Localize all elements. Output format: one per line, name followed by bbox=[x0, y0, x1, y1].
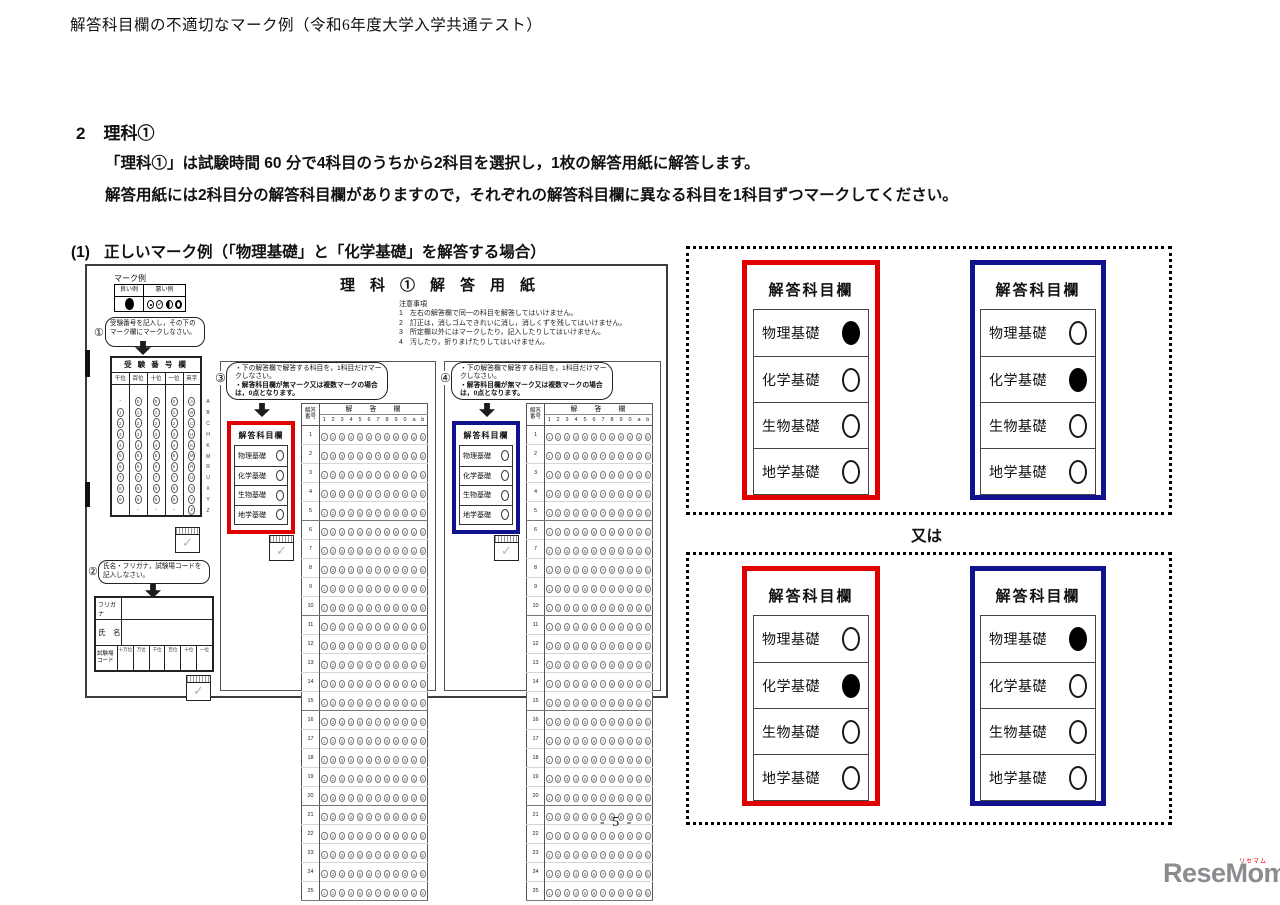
subject-label: 物理基礎 bbox=[238, 451, 266, 461]
answer-bubble-icon: 4 bbox=[573, 851, 580, 860]
answer-bubble-icon: 9 bbox=[618, 452, 625, 461]
answer-bubble-icon: 0 bbox=[627, 870, 634, 879]
answer-bubble-icon: 1 bbox=[321, 433, 328, 442]
answer-bubble-icon: 8 bbox=[609, 433, 616, 442]
answer-bubble-icon: 3 bbox=[564, 832, 571, 841]
answer-bubble-icon: 4 bbox=[573, 870, 580, 879]
number-bubble-icon: 7 bbox=[153, 473, 160, 483]
answer-bubble-icon: 2 bbox=[555, 737, 562, 746]
empty-bubble-icon bbox=[842, 627, 860, 651]
answer-bubble-icon: 7 bbox=[600, 433, 607, 442]
answer-bubble-icon: 1 bbox=[546, 851, 553, 860]
answer-bubble-icon: a bbox=[411, 699, 418, 708]
answer-bubble-icon: 5 bbox=[357, 775, 364, 784]
number-bubble-icon: 9 bbox=[117, 495, 124, 505]
empty-bubble-icon bbox=[1069, 414, 1087, 438]
note-line: 2 訂正は，消しゴムできれいに消し，消しくずを残してはいけません。 bbox=[399, 319, 626, 329]
answer-bubble-icon: 3 bbox=[564, 566, 571, 575]
answer-bubble-icon: a bbox=[636, 604, 643, 613]
answer-bubble-icon: 5 bbox=[582, 452, 589, 461]
subject-label: 地学基礎 bbox=[762, 768, 820, 788]
answer-bubble-icon: 5 bbox=[357, 661, 364, 670]
answer-bubble-icon: 1 bbox=[321, 509, 328, 518]
answer-bubble-icon: 9 bbox=[393, 566, 400, 575]
step4-number: ④ bbox=[440, 371, 451, 385]
subject-label: 物理基礎 bbox=[989, 323, 1047, 343]
answer-bubble-icon: 1 bbox=[546, 642, 553, 651]
check-icon: ✓ bbox=[187, 683, 210, 699]
answer-bubble-icon: 6 bbox=[366, 737, 373, 746]
answer-bubble-icon: 7 bbox=[375, 889, 382, 898]
answer-bubble-icon: 0 bbox=[627, 718, 634, 727]
number-bubble-icon: Y bbox=[188, 495, 195, 505]
answer-bubble-icon: a bbox=[636, 794, 643, 803]
number-bubble-icon: 1 bbox=[171, 408, 178, 418]
answer-bubble-icon: b bbox=[645, 889, 652, 898]
answer-bubble-icon: 5 bbox=[357, 509, 364, 518]
answer-bubble-icon: 9 bbox=[393, 889, 400, 898]
answer-bubble-icon: 4 bbox=[573, 661, 580, 670]
answer-bubble-icon: b bbox=[645, 566, 652, 575]
answer-bubble-icon: 4 bbox=[348, 813, 355, 822]
answer-bubble-icon: b bbox=[645, 585, 652, 594]
answer-bubble-icon: a bbox=[411, 794, 418, 803]
answer-bubble-icon: 2 bbox=[330, 642, 337, 651]
exam-site-code-label: 試験場 コード bbox=[96, 646, 118, 670]
subject-row: 地学基礎 bbox=[981, 754, 1095, 800]
correct-example-pattern-2: 解答科目欄 物理基礎化学基礎生物基礎地学基礎 解答科目欄 物理基礎化学基礎生物基… bbox=[686, 552, 1172, 825]
answer-bubble-icon: 0 bbox=[627, 547, 634, 556]
subject-row: 生物基礎 bbox=[235, 485, 287, 505]
answer-bubble-icon: 0 bbox=[402, 794, 409, 803]
empty-bubble-icon bbox=[1069, 321, 1087, 345]
answer-bubble-icon: 8 bbox=[384, 585, 391, 594]
answer-bubble-icon: 8 bbox=[384, 452, 391, 461]
answer-bubble-icon: 4 bbox=[348, 604, 355, 613]
answer-bubble-icon: 0 bbox=[402, 851, 409, 860]
subject-label: 生物基礎 bbox=[762, 722, 820, 742]
timing-mark-icon bbox=[85, 482, 90, 507]
answer-bubble-icon: 8 bbox=[609, 889, 616, 898]
answer-bubble-icon: 2 bbox=[330, 433, 337, 442]
answer-bubble-icon: 3 bbox=[339, 528, 346, 537]
answer-bubble-icon: 6 bbox=[591, 585, 598, 594]
answer-bubble-icon: a bbox=[636, 889, 643, 898]
answer-bubble-icon: b bbox=[420, 642, 427, 651]
answer-bubble-icon: b bbox=[645, 547, 652, 556]
letter-index: X bbox=[206, 484, 210, 495]
letter-index-column: ABCHKMRUXYZ bbox=[206, 397, 210, 517]
answer-bubble-icon: 0 bbox=[402, 737, 409, 746]
answer-bubble-icon: b bbox=[645, 870, 652, 879]
answer-bubble-icon: 7 bbox=[375, 566, 382, 575]
answer-bubble-icon: b bbox=[420, 623, 427, 632]
answer-bubble-icon: 3 bbox=[339, 870, 346, 879]
answer-bubble-icon: 1 bbox=[321, 870, 328, 879]
answer-bubble-icon: 7 bbox=[600, 661, 607, 670]
answer-bubble-icon: 1 bbox=[546, 813, 553, 822]
answer-bubble-icon: 0 bbox=[627, 889, 634, 898]
answer-bubble-icon: a bbox=[636, 452, 643, 461]
answer-bubble-icon: 3 bbox=[564, 718, 571, 727]
answer-bubble-icon: a bbox=[411, 452, 418, 461]
answer-bubble-icon: 1 bbox=[321, 490, 328, 499]
number-bubble-icon: 7 bbox=[135, 473, 142, 483]
answer-bubble-icon: 4 bbox=[573, 680, 580, 689]
answer-bubble-icon: b bbox=[645, 623, 652, 632]
answer-bubble-icon: 7 bbox=[375, 680, 382, 689]
answer-bubble-icon: 4 bbox=[348, 737, 355, 746]
answer-bubble-icon: 1 bbox=[546, 509, 553, 518]
subject-label: 地学基礎 bbox=[762, 462, 820, 482]
answer-bubble-icon: 3 bbox=[339, 490, 346, 499]
answer-bubble-icon: 3 bbox=[564, 889, 571, 898]
step1-instruction: 受験番号を記入し，その下のマーク欄にマークしなさい。 bbox=[105, 317, 205, 347]
answer-bubble-icon: 0 bbox=[402, 870, 409, 879]
answer-bubble-icon: 4 bbox=[573, 699, 580, 708]
subject-label: 物理基礎 bbox=[762, 323, 820, 343]
answer-bubble-icon: 4 bbox=[348, 642, 355, 651]
answer-bubble-icon: 2 bbox=[555, 718, 562, 727]
answer-bubble-icon: 8 bbox=[609, 832, 616, 841]
answer-bubble-icon: 1 bbox=[546, 528, 553, 537]
answer-bubble-icon: a bbox=[636, 490, 643, 499]
answer-bubble-icon: 4 bbox=[348, 889, 355, 898]
step4-line1: ・下の解答欄で解答する科目を，1科目だけマークしなさい。 bbox=[460, 365, 608, 382]
answer-bubble-icon: 4 bbox=[348, 718, 355, 727]
answer-bubble-icon: a bbox=[411, 585, 418, 594]
empty-bubble-icon bbox=[276, 470, 284, 481]
answer-bubble-icon: 4 bbox=[573, 509, 580, 518]
check-box: ✓ bbox=[269, 535, 294, 561]
answer-bubble-icon: b bbox=[645, 756, 652, 765]
subject-table: 物理基礎化学基礎生物基礎地学基礎 bbox=[753, 309, 869, 495]
paragraph-2: 解答用紙には2科目分の解答科目欄がありますので，それぞれの解答科目欄に異なる科目… bbox=[105, 183, 958, 205]
answer-bubble-icon: 6 bbox=[366, 813, 373, 822]
answer-bubble-icon: 1 bbox=[321, 699, 328, 708]
answer-bubble-icon: a bbox=[411, 756, 418, 765]
subject-box-title: 解答科目欄 bbox=[975, 279, 1101, 300]
answer-bubble-icon: 5 bbox=[582, 794, 589, 803]
answer-bubble-icon: b bbox=[420, 490, 427, 499]
answer-bubble-icon: 9 bbox=[618, 851, 625, 860]
answer-bubble-icon: 9 bbox=[393, 756, 400, 765]
answer-bubble-icon: 4 bbox=[573, 775, 580, 784]
answer-bubble-icon: a bbox=[636, 566, 643, 575]
answer-bubble-icon: b bbox=[645, 490, 652, 499]
answer-bubble-icon: 2 bbox=[330, 699, 337, 708]
answer-bubble-icon: 1 bbox=[546, 471, 553, 480]
answer-bubble-icon: 8 bbox=[609, 794, 616, 803]
answer-bubble-icon: 1 bbox=[546, 718, 553, 727]
subject-label: 生物基礎 bbox=[463, 490, 491, 500]
correct-example-pattern-1: 解答科目欄 物理基礎化学基礎生物基礎地学基礎 解答科目欄 物理基礎化学基礎生物基… bbox=[686, 246, 1172, 515]
answer-bubble-icon: 8 bbox=[609, 699, 616, 708]
subject-row: 化学基礎 bbox=[981, 356, 1095, 402]
resemom-logo: ReseMom. リセマム bbox=[1163, 858, 1271, 889]
answer-bubble-icon: 3 bbox=[564, 642, 571, 651]
empty-bubble-icon bbox=[842, 368, 860, 392]
sheet-title: 理 科 ① 解 答 用 紙 bbox=[340, 274, 535, 295]
number-bubble-icon: 2 bbox=[117, 418, 124, 428]
answer-bubble-icon: 4 bbox=[573, 737, 580, 746]
subject-row: 物理基礎 bbox=[235, 446, 287, 466]
step1-number: ① bbox=[94, 326, 104, 339]
empty-bubble-icon bbox=[501, 450, 509, 461]
answer-grid-table: 解答番号解 答 欄1234567890ab11234567890ab212345… bbox=[301, 403, 428, 901]
check-icon: ✓ bbox=[176, 535, 199, 551]
code-column: 千位 bbox=[149, 646, 165, 670]
number-bubble-icon: H bbox=[188, 429, 195, 439]
answer-bubble-icon: 3 bbox=[564, 452, 571, 461]
answer-bubble-icon: 9 bbox=[618, 566, 625, 575]
subject-label: 化学基礎 bbox=[762, 676, 820, 696]
answer-bubble-icon: a bbox=[636, 775, 643, 784]
answer-bubble-icon: 5 bbox=[582, 737, 589, 746]
answer-bubble-icon: 4 bbox=[348, 699, 355, 708]
answer-bubble-icon: 9 bbox=[618, 870, 625, 879]
answer-bubble-icon: 6 bbox=[366, 794, 373, 803]
answer-bubble-icon: 4 bbox=[348, 870, 355, 879]
answer-bubble-icon: 1 bbox=[546, 661, 553, 670]
number-bubble-icon: 4 bbox=[117, 440, 124, 450]
answer-bubble-icon: 2 bbox=[330, 756, 337, 765]
answer-bubble-icon: 6 bbox=[366, 547, 373, 556]
answer-bubble-icon: 6 bbox=[366, 718, 373, 727]
answer-bubble-icon: 0 bbox=[627, 471, 634, 480]
empty-bubble-icon bbox=[276, 450, 284, 461]
answer-bubble-icon: 3 bbox=[339, 699, 346, 708]
answer-bubble-icon: 6 bbox=[591, 661, 598, 670]
letter-index: C bbox=[206, 419, 210, 430]
example-number: (1) bbox=[71, 244, 90, 261]
answer-bubble-icon: 8 bbox=[384, 699, 391, 708]
answer-bubble-icon: a bbox=[636, 756, 643, 765]
marked-bubble-icon bbox=[842, 674, 860, 698]
answer-bubble-icon: 9 bbox=[393, 699, 400, 708]
answer-bubble-icon: 6 bbox=[366, 832, 373, 841]
answer-bubble-icon: 5 bbox=[357, 452, 364, 461]
subject-row: 生物基礎 bbox=[754, 402, 868, 448]
answer-bubble-icon: a bbox=[411, 623, 418, 632]
answer-bubble-icon: 6 bbox=[591, 832, 598, 841]
answer-bubble-icon: 7 bbox=[600, 452, 607, 461]
answer-bubble-icon: 2 bbox=[330, 471, 337, 480]
answer-bubble-icon: 3 bbox=[564, 471, 571, 480]
document-title: 解答科目欄の不適切なマーク例（令和6年度大学入学共通テスト） bbox=[70, 13, 542, 35]
answer-bubble-icon: 4 bbox=[573, 471, 580, 480]
name-entry-box: フリガナ 氏 名 試験場 コード 十万位万位千位百位十位一位 bbox=[94, 596, 214, 672]
answer-bubble-icon: a bbox=[411, 642, 418, 651]
answer-bubble-icon: 9 bbox=[618, 756, 625, 765]
answer-bubble-icon: 3 bbox=[339, 718, 346, 727]
answer-bubble-icon: 2 bbox=[330, 509, 337, 518]
answer-bubble-icon: 8 bbox=[384, 889, 391, 898]
answer-bubble-icon: 6 bbox=[591, 623, 598, 632]
answer-bubble-icon: 4 bbox=[348, 433, 355, 442]
subject-label: 生物基礎 bbox=[762, 416, 820, 436]
answer-bubble-icon: 9 bbox=[618, 433, 625, 442]
answer-bubble-icon: 0 bbox=[402, 604, 409, 613]
answer-bubble-icon: a bbox=[411, 718, 418, 727]
answer-bubble-icon: 5 bbox=[582, 889, 589, 898]
red-subject-panel: 解答科目欄 物理基礎化学基礎生物基礎地学基礎 bbox=[742, 260, 880, 500]
subject-row: 物理基礎 bbox=[981, 310, 1095, 356]
answer-bubble-icon: 4 bbox=[573, 490, 580, 499]
answer-bubble-icon: 6 bbox=[366, 680, 373, 689]
answer-bubble-icon: 1 bbox=[546, 623, 553, 632]
answer-bubble-icon: 0 bbox=[402, 509, 409, 518]
answer-bubble-icon: 2 bbox=[555, 794, 562, 803]
answer-bubble-icon: 5 bbox=[357, 889, 364, 898]
answer-bubble-icon: b bbox=[420, 604, 427, 613]
answer-bubble-icon: 5 bbox=[582, 509, 589, 518]
number-bubble-icon: 8 bbox=[153, 484, 160, 494]
answer-bubble-icon: 7 bbox=[600, 870, 607, 879]
subject-table: 物理基礎化学基礎生物基礎地学基礎 bbox=[459, 445, 513, 525]
answer-bubble-icon: 5 bbox=[582, 528, 589, 537]
answer-bubble-icon: 0 bbox=[627, 509, 634, 518]
answer-bubble-icon: 3 bbox=[339, 604, 346, 613]
number-bubble-icon: U bbox=[188, 473, 195, 483]
answer-bubble-icon: 1 bbox=[321, 851, 328, 860]
answer-bubble-icon: 6 bbox=[591, 604, 598, 613]
check-box-label-strip bbox=[270, 536, 293, 543]
number-bubble-icon: 0 bbox=[153, 397, 160, 407]
answer-bubble-icon: 8 bbox=[609, 585, 616, 594]
answer-bubble-icon: 4 bbox=[348, 490, 355, 499]
answer-bubble-icon: 9 bbox=[618, 889, 625, 898]
step2-instruction: 氏名・フリガナ，試験場コードを記入しなさい。 bbox=[98, 560, 210, 584]
answer-bubble-icon: 8 bbox=[609, 509, 616, 518]
answer-bubble-icon: b bbox=[645, 433, 652, 442]
answer-bubble-icon: 8 bbox=[384, 433, 391, 442]
subject-box-title: 解答科目欄 bbox=[231, 430, 291, 441]
answer-bubble-icon: 3 bbox=[339, 509, 346, 518]
answer-bubble-icon: 6 bbox=[366, 509, 373, 518]
answer-bubble-icon: 1 bbox=[321, 756, 328, 765]
step3-number: ③ bbox=[215, 371, 226, 385]
section-heading: 2理科① bbox=[76, 119, 154, 144]
answer-bubble-icon: 3 bbox=[339, 680, 346, 689]
answer-grid-right: 解答番号解 答 欄1234567890ab11234567890ab212345… bbox=[526, 403, 653, 901]
answer-bubble-icon: b bbox=[645, 851, 652, 860]
answer-bubble-icon: 5 bbox=[357, 851, 364, 860]
subject-label: 物理基礎 bbox=[762, 629, 820, 649]
answer-bubble-icon: 5 bbox=[582, 851, 589, 860]
answer-bubble-icon: 4 bbox=[573, 813, 580, 822]
number-bubble-icon: 1 bbox=[117, 408, 124, 418]
answer-bubble-icon: 8 bbox=[609, 737, 616, 746]
check-box-label-strip bbox=[176, 528, 199, 535]
answer-bubble-icon: 4 bbox=[573, 718, 580, 727]
answer-bubble-icon: a bbox=[636, 680, 643, 689]
answer-bubble-icon: 6 bbox=[366, 490, 373, 499]
answer-bubble-icon: 8 bbox=[609, 547, 616, 556]
answer-bubble-icon: 5 bbox=[582, 756, 589, 765]
subject-label: 物理基礎 bbox=[989, 629, 1047, 649]
answer-bubble-icon: 6 bbox=[366, 585, 373, 594]
number-bubble-icon: 7 bbox=[117, 473, 124, 483]
answer-bubble-icon: 2 bbox=[330, 889, 337, 898]
answer-bubble-icon: 8 bbox=[609, 452, 616, 461]
subject-row: 地学基礎 bbox=[981, 448, 1095, 494]
answer-bubble-icon: 6 bbox=[591, 490, 598, 499]
subject-box-title: 解答科目欄 bbox=[975, 585, 1101, 606]
answer-bubble-icon: 5 bbox=[357, 794, 364, 803]
answer-bubble-icon: 9 bbox=[393, 794, 400, 803]
furigana-label: フリガナ bbox=[96, 598, 122, 619]
answer-bubble-icon: 4 bbox=[573, 642, 580, 651]
answer-bubble-icon: 9 bbox=[618, 642, 625, 651]
answer-bubble-icon: 0 bbox=[627, 566, 634, 575]
answer-bubble-icon: 5 bbox=[357, 566, 364, 575]
subject-table: 物理基礎化学基礎生物基礎地学基礎 bbox=[980, 309, 1096, 495]
answer-bubble-icon: 6 bbox=[591, 794, 598, 803]
answer-bubble-icon: 1 bbox=[321, 718, 328, 727]
answer-bubble-icon: a bbox=[636, 737, 643, 746]
answer-bubble-icon: 5 bbox=[582, 775, 589, 784]
check-icon: ✓ bbox=[270, 543, 293, 559]
answer-bubble-icon: 8 bbox=[384, 471, 391, 480]
answer-bubble-icon: 8 bbox=[384, 623, 391, 632]
answer-bubble-icon: 8 bbox=[384, 604, 391, 613]
empty-bubble-icon bbox=[1069, 720, 1087, 744]
subject-label: 地学基礎 bbox=[989, 768, 1047, 788]
answer-bubble-icon: 6 bbox=[366, 604, 373, 613]
answer-bubble-icon: 6 bbox=[366, 889, 373, 898]
answer-bubble-icon: 3 bbox=[564, 528, 571, 537]
answer-bubble-icon: b bbox=[645, 680, 652, 689]
mark-example-title: マーク例 bbox=[114, 273, 146, 284]
answer-bubble-icon: 2 bbox=[330, 870, 337, 879]
answer-bubble-icon: 8 bbox=[384, 756, 391, 765]
answer-bubble-icon: 3 bbox=[339, 889, 346, 898]
marked-bubble-icon bbox=[1069, 368, 1087, 392]
answer-bubble-icon: 9 bbox=[618, 718, 625, 727]
answer-bubble-icon: a bbox=[411, 604, 418, 613]
answer-bubble-icon: 4 bbox=[348, 756, 355, 765]
answer-bubble-icon: a bbox=[411, 566, 418, 575]
answer-bubble-icon: 8 bbox=[384, 737, 391, 746]
answer-bubble-icon: 2 bbox=[555, 452, 562, 461]
number-bubble-icon: 6 bbox=[117, 462, 124, 472]
answer-bubble-icon: 7 bbox=[375, 661, 382, 670]
answer-bubble-icon: 4 bbox=[573, 623, 580, 632]
answer-bubble-icon: 0 bbox=[402, 699, 409, 708]
answer-bubble-icon: 2 bbox=[555, 775, 562, 784]
answer-bubble-icon: 2 bbox=[330, 832, 337, 841]
answer-bubble-icon: 5 bbox=[357, 870, 364, 879]
answer-bubble-icon: 4 bbox=[348, 547, 355, 556]
answer-bubble-icon: 6 bbox=[591, 509, 598, 518]
answer-bubble-icon: 5 bbox=[582, 585, 589, 594]
answer-bubble-icon: 0 bbox=[402, 452, 409, 461]
answer-bubble-icon: 8 bbox=[609, 604, 616, 613]
answer-bubble-icon: 9 bbox=[618, 775, 625, 784]
answer-bubble-icon: 7 bbox=[375, 756, 382, 765]
answer-bubble-icon: 1 bbox=[321, 775, 328, 784]
answer-bubble-icon: b bbox=[420, 585, 427, 594]
answer-sheet: マーク例 良い例 悪い例 ① 受験番号を記入し，その下のマーク欄にマークしなさい… bbox=[85, 264, 668, 698]
answer-bubble-icon: 2 bbox=[555, 889, 562, 898]
answer-bubble-icon: 9 bbox=[618, 832, 625, 841]
answer-bubble-icon: 4 bbox=[348, 832, 355, 841]
answer-bubble-icon: 5 bbox=[582, 490, 589, 499]
answer-bubble-icon: 6 bbox=[366, 452, 373, 461]
answer-bubble-icon: 0 bbox=[627, 433, 634, 442]
subject-row: 生物基礎 bbox=[981, 708, 1095, 754]
